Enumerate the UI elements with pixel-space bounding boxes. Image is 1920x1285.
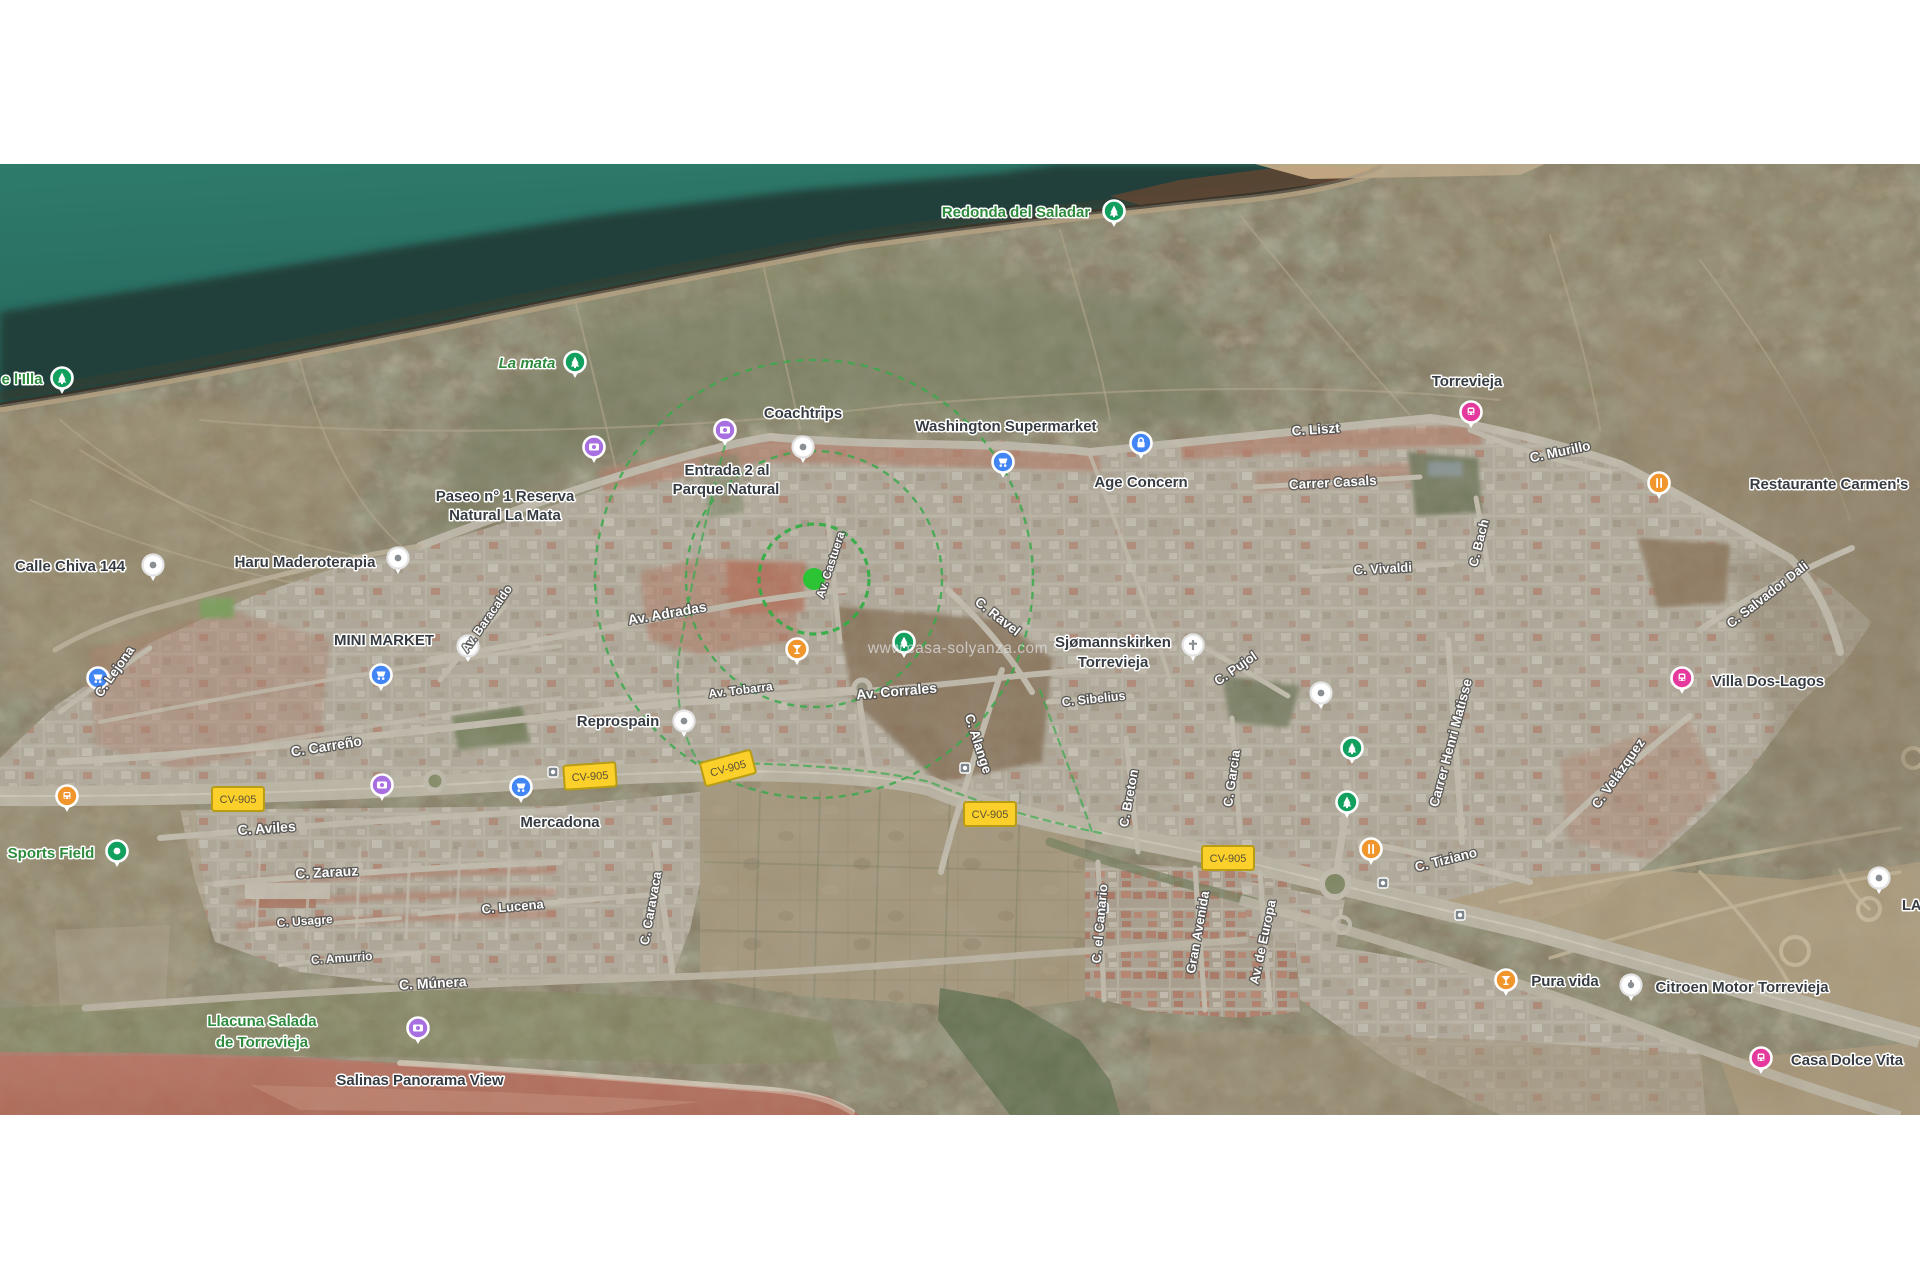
svg-text:Age Concern: Age Concern	[1094, 474, 1187, 491]
svg-text:Redonda del Saladar: Redonda del Saladar	[942, 204, 1091, 221]
svg-text:www.casa-solyanza.com: www.casa-solyanza.com	[867, 640, 1048, 657]
svg-text:CV-905: CV-905	[972, 809, 1009, 821]
svg-text:Natural La Mata: Natural La Mata	[449, 507, 561, 524]
svg-text:Pura vida: Pura vida	[1531, 973, 1599, 990]
svg-text:La mata: La mata	[499, 355, 556, 372]
svg-text:Villa Dos-Lagos: Villa Dos-Lagos	[1712, 673, 1824, 690]
svg-text:C. Vivaldi: C. Vivaldi	[1353, 559, 1412, 577]
svg-text:de Torrevieja: de Torrevieja	[216, 1034, 309, 1051]
svg-text:Reprospain: Reprospain	[577, 713, 660, 730]
svg-text:Salinas Panorama View: Salinas Panorama View	[336, 1072, 504, 1089]
svg-text:Calle Chiva 144: Calle Chiva 144	[15, 558, 126, 575]
svg-text:Torrevieja: Torrevieja	[1432, 373, 1503, 390]
svg-text:LA HOYA BY DU: LA HOYA BY DU	[1902, 898, 1920, 914]
svg-text:Paseo n° 1 Reserva: Paseo n° 1 Reserva	[436, 488, 575, 505]
svg-text:Washington Supermarket: Washington Supermarket	[915, 418, 1096, 435]
svg-text:e l'Illa: e l'Illa	[1, 371, 43, 388]
svg-text:MINI MARKET: MINI MARKET	[334, 632, 434, 649]
svg-text:Entrada 2 al: Entrada 2 al	[684, 462, 769, 479]
svg-text:Haru Maderoterapia: Haru Maderoterapia	[235, 554, 377, 571]
svg-text:Citroen Motor Torrevieja: Citroen Motor Torrevieja	[1655, 979, 1829, 996]
svg-text:CV-905: CV-905	[1210, 853, 1247, 865]
svg-text:Coachtrips: Coachtrips	[764, 405, 842, 422]
svg-text:Casa Dolce Vita: Casa Dolce Vita	[1791, 1052, 1904, 1069]
svg-text:Restaurante Carmen's: Restaurante Carmen's	[1750, 476, 1909, 493]
svg-text:Torrevieja: Torrevieja	[1078, 654, 1149, 671]
svg-text:Llacuna Salada: Llacuna Salada	[207, 1013, 317, 1030]
svg-text:CV-905: CV-905	[571, 770, 608, 785]
svg-text:Mercadona: Mercadona	[520, 814, 600, 831]
svg-text:Parque Natural: Parque Natural	[673, 481, 780, 498]
svg-text:Sports Field: Sports Field	[8, 845, 95, 862]
svg-text:Sjømannskirken: Sjømannskirken	[1055, 634, 1171, 651]
svg-text:C. Zarauz: C. Zarauz	[295, 862, 359, 881]
svg-text:CV-905: CV-905	[220, 794, 257, 806]
